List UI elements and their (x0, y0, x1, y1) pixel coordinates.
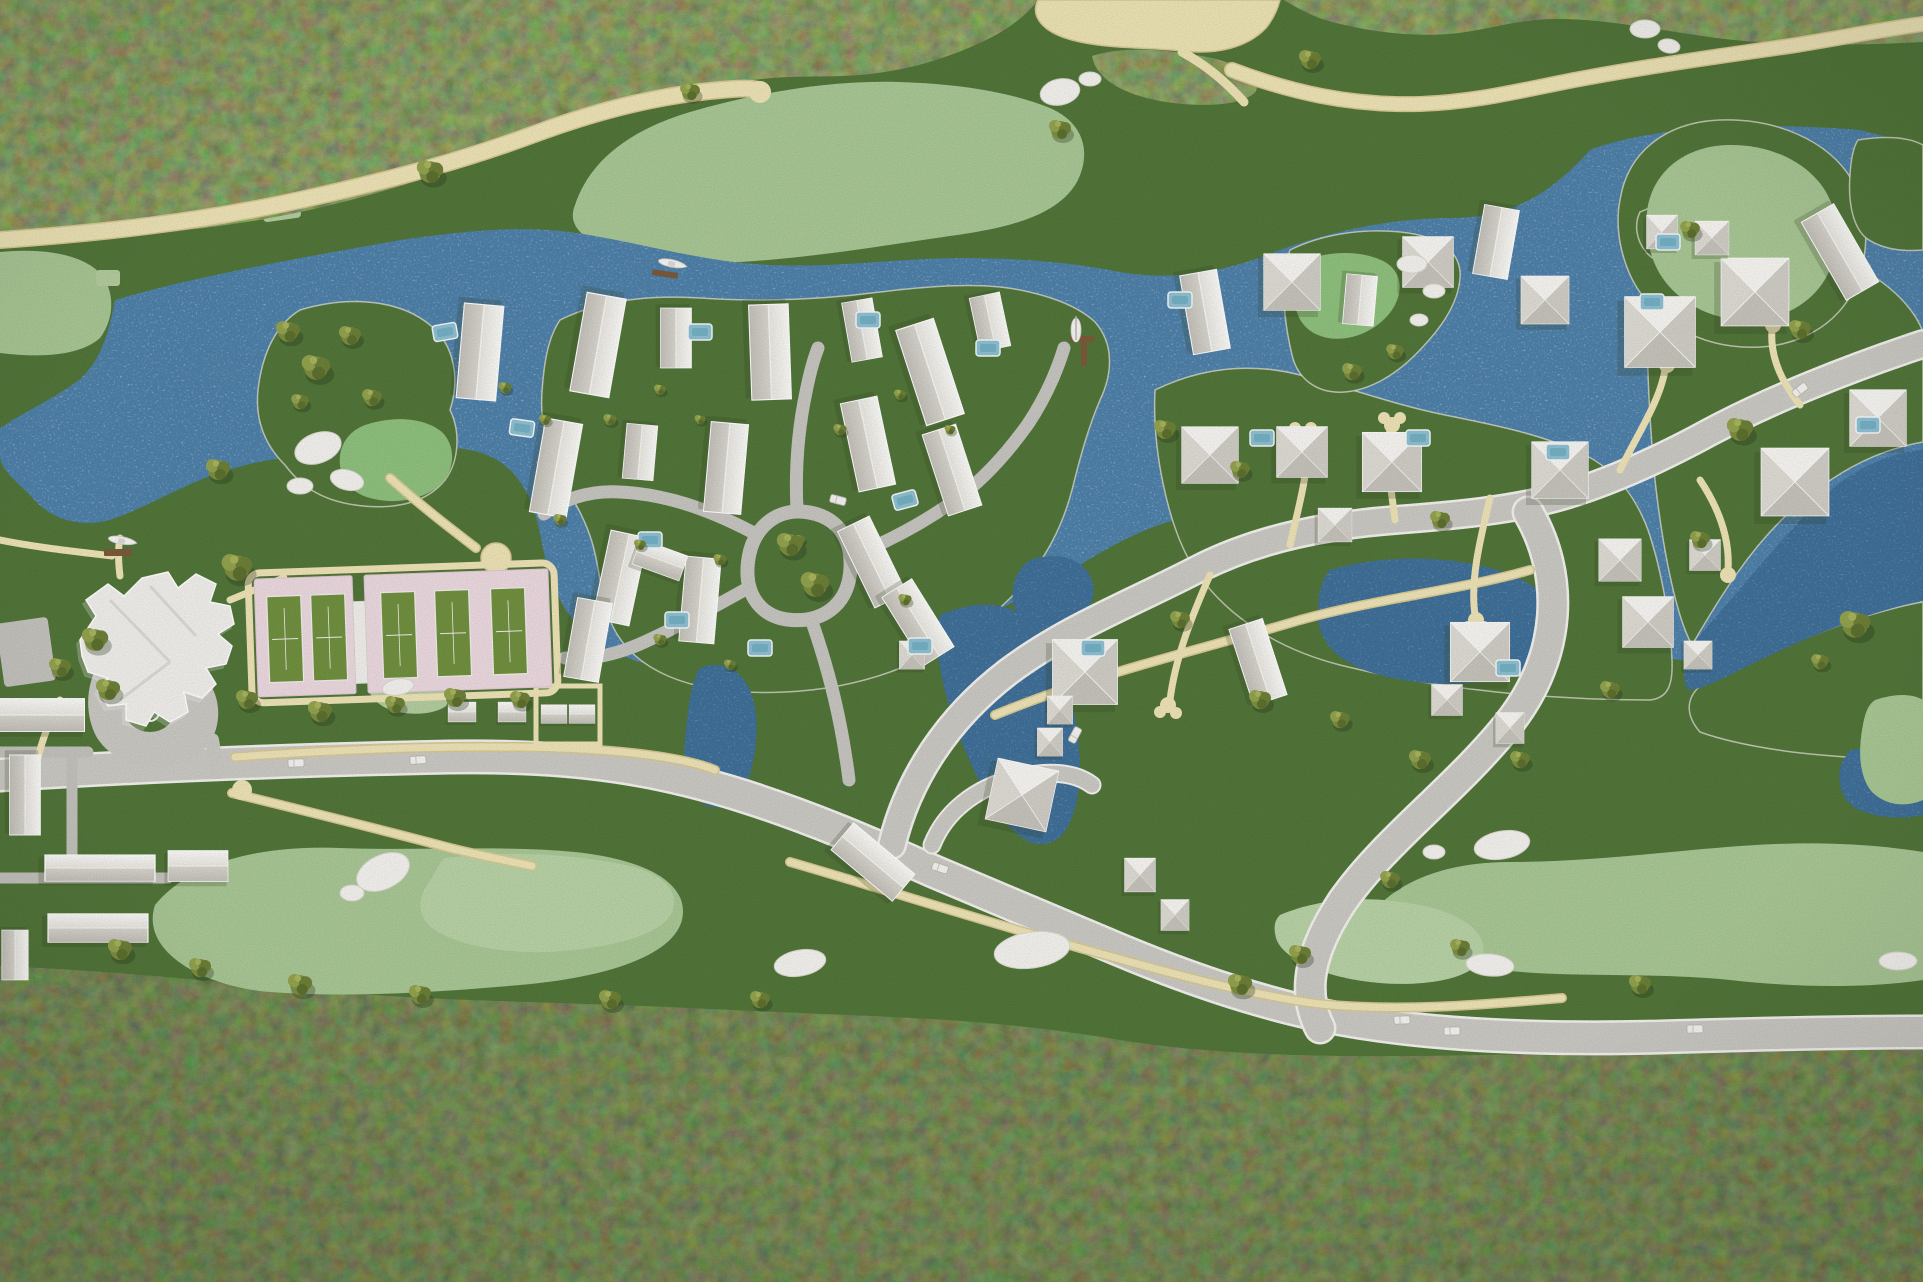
model-photo: Aerial view of an architectural scale mo… (0, 0, 1923, 1282)
resort-model-illustration: Aerial view of an architectural scale mo… (0, 0, 1923, 1282)
vignette (0, 0, 1923, 1282)
